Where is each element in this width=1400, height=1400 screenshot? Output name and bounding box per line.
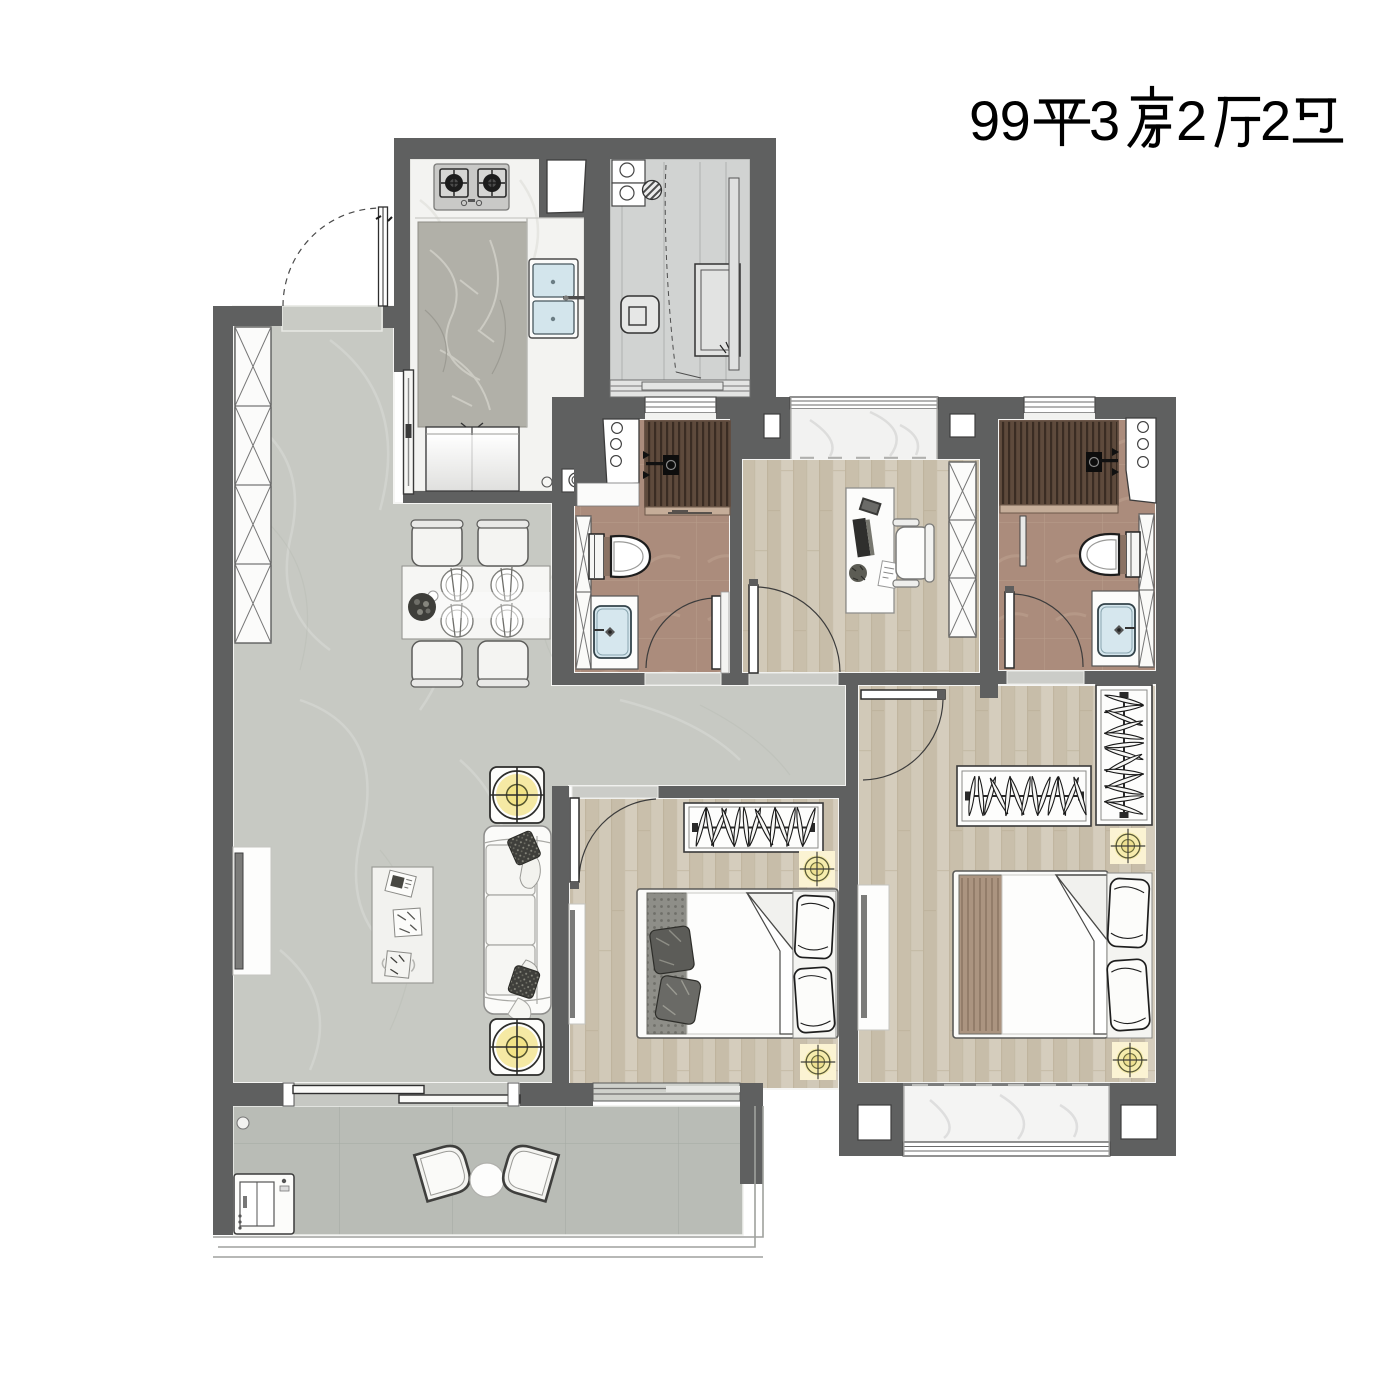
svg-text:3: 3 bbox=[1089, 89, 1120, 152]
svg-text:2: 2 bbox=[1260, 89, 1291, 152]
svg-text:99: 99 bbox=[969, 89, 1030, 152]
svg-text:2: 2 bbox=[1176, 89, 1207, 152]
